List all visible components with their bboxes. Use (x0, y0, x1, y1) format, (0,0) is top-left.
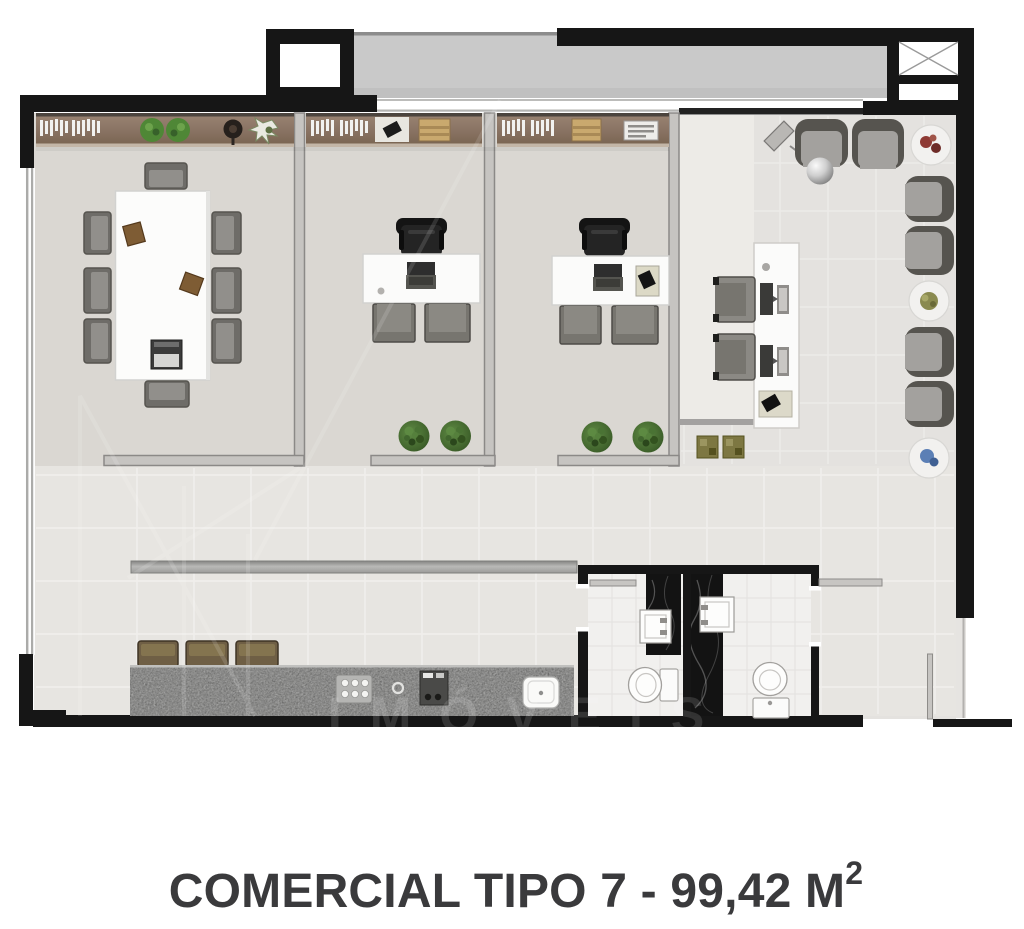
svg-text:IMÓVEIS: IMÓVEIS (328, 687, 732, 743)
svg-text:COMERCIAL TIPO 7 - 99,42 M2: COMERCIAL TIPO 7 - 99,42 M2 (169, 855, 863, 918)
